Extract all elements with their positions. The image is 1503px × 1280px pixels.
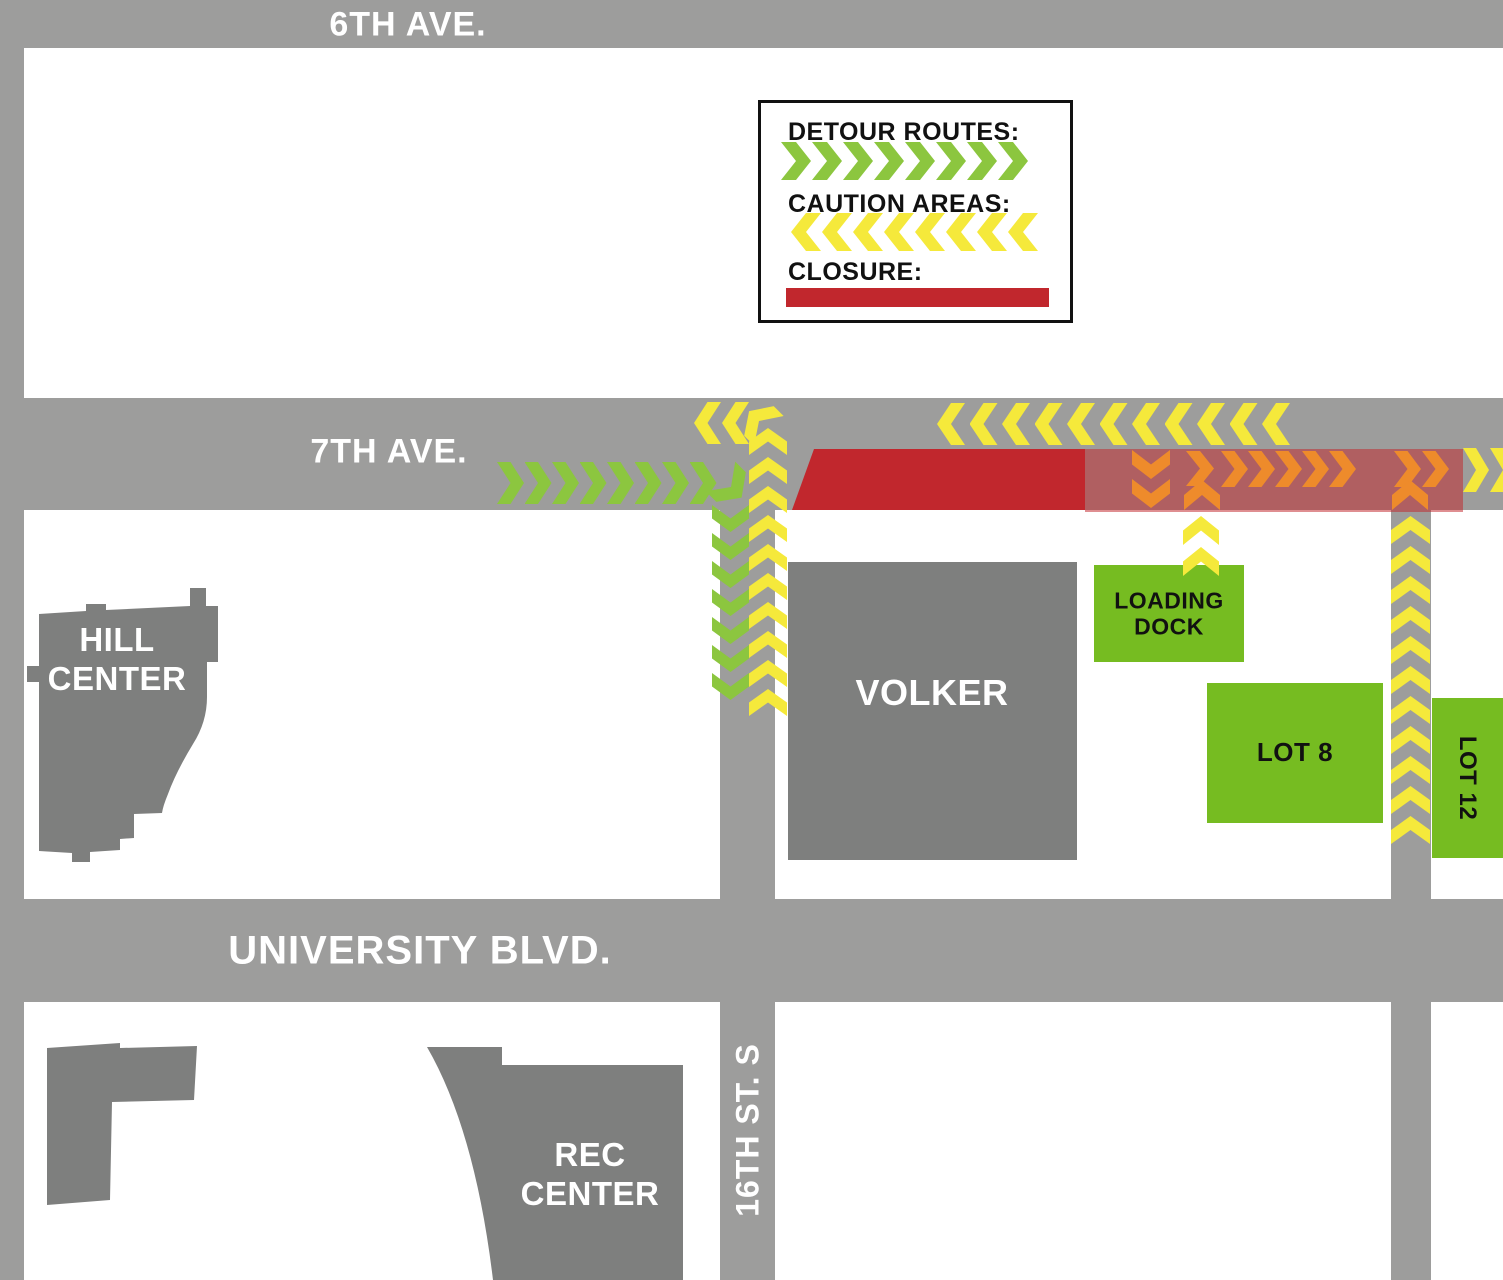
caution-zone-7th-ave (1085, 449, 1463, 512)
legend-closure-swatch (786, 288, 1049, 307)
legend-caution-label: CAUTION AREAS: (788, 190, 1011, 219)
lot12-area (1432, 698, 1503, 858)
volker-shape (788, 562, 1077, 860)
legend-detour-label: DETOUR ROUTES: (788, 118, 1020, 147)
legend: DETOUR ROUTES: CAUTION AREAS: CLOSURE: (758, 100, 1073, 323)
building-shapes (0, 0, 1503, 1280)
rec-center-shape (427, 1047, 683, 1280)
campus-detour-map: DETOUR ROUTES: CAUTION AREAS: CLOSURE: 6… (0, 0, 1503, 1280)
legend-closure-label: CLOSURE: (788, 258, 923, 287)
southwest-building-shape (47, 1043, 197, 1205)
lot8-area (1207, 683, 1383, 823)
closure-bar-7th-ave (792, 449, 1085, 510)
hill-center-shape (27, 588, 218, 862)
loading-dock-area (1094, 565, 1244, 662)
